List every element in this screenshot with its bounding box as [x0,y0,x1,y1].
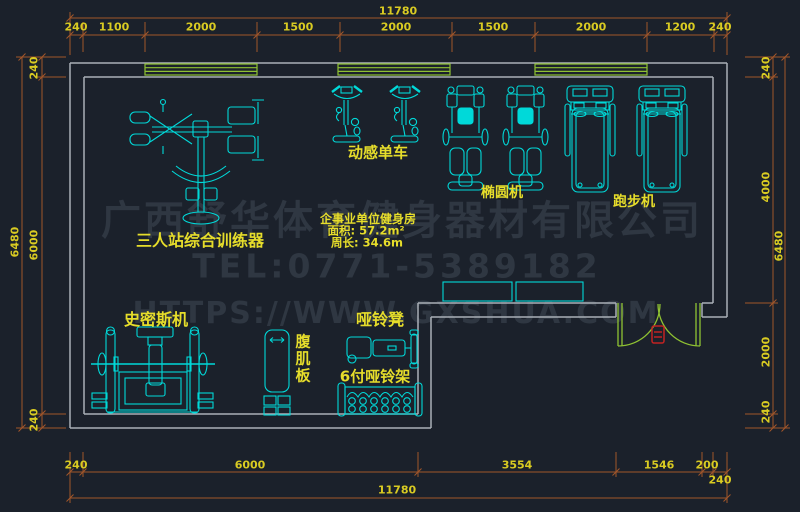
dim-top-seg: 2000 [186,22,217,33]
label-smith-machine: 史密斯机 [124,312,188,328]
dim-bottom-seg: 200 [696,460,719,471]
dim-bottom-seg: 1546 [644,460,675,471]
dim-right-seg: 240 [761,401,772,424]
dim-top-seg: 1500 [478,22,509,33]
dim-left-seg: 6000 [29,230,40,261]
dim-bottom-total: 11780 [378,485,416,496]
dim-top-seg: 2000 [576,22,607,33]
label-dumbbell-bench: 哑铃凳 [356,312,404,328]
cad-floor-plan: 广西舒华体育健身器材有限公司 TEL:0771-5389182 HTTPS://… [0,0,800,512]
dim-top-seg: 1200 [665,22,696,33]
dim-right-total: 6480 [774,231,785,262]
room-perimeter: 周长: 34.6m [331,237,403,249]
text-layer: 11780 240 1100 2000 1500 2000 1500 2000 … [0,0,800,512]
label-dumbbell-rack: 6付哑铃架 [340,370,410,385]
dim-top-seg: 2000 [381,22,412,33]
dim-left-seg: 240 [29,409,40,432]
dim-top-seg: 1500 [283,22,314,33]
dim-bottom-seg: 6000 [235,460,266,471]
dim-bottom-seg: 3554 [502,460,533,471]
dim-top-total: 11780 [379,6,417,17]
dim-right-seg: 4000 [761,172,772,203]
dim-right-seg: 240 [761,57,772,80]
label-spin-bike: 动感单车 [348,146,408,161]
dim-top-seg: 240 [709,22,732,33]
label-treadmill: 跑步机 [613,195,655,209]
dim-right-seg: 2000 [761,337,772,368]
label-multi-trainer: 三人站综合训练器 [136,233,264,249]
dim-top-seg: 1100 [99,22,130,33]
label-ab-board: 腹肌板 [295,334,310,385]
label-elliptical: 椭圆机 [481,186,523,200]
dim-top-seg: 240 [65,22,88,33]
dim-left-total: 6480 [10,227,21,258]
dim-left-seg: 240 [29,57,40,80]
dim-bottom-seg: 240 [65,460,88,471]
dim-bottom-seg: 240 [709,475,732,486]
